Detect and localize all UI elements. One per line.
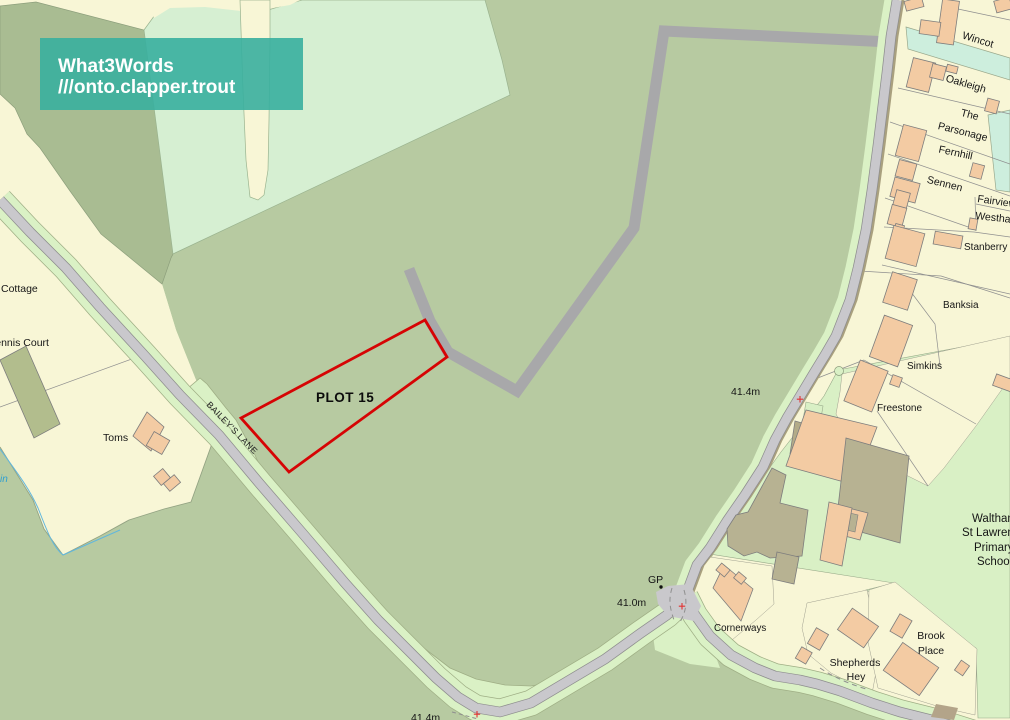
svg-text:in: in xyxy=(0,474,8,485)
svg-text:Brook: Brook xyxy=(917,630,945,642)
svg-text:Toms: Toms xyxy=(103,432,128,444)
svg-text:What3Words: What3Words xyxy=(58,56,174,77)
svg-text:St Lawrence: St Lawrence xyxy=(962,527,1010,539)
svg-text:Freestone: Freestone xyxy=(877,403,922,414)
svg-text:Stanberry: Stanberry xyxy=(964,242,1007,253)
svg-text:Hey: Hey xyxy=(847,671,866,683)
svg-text:Cornerways: Cornerways xyxy=(714,623,766,634)
svg-text:Simkins: Simkins xyxy=(907,361,942,372)
svg-text:///onto.clapper.trout: ///onto.clapper.trout xyxy=(58,77,236,98)
svg-text:41.4m: 41.4m xyxy=(411,712,440,720)
svg-text:School: School xyxy=(977,556,1010,568)
svg-text:PLOT 15: PLOT 15 xyxy=(316,390,374,405)
svg-text:Shepherds: Shepherds xyxy=(830,657,881,669)
svg-text:Tennis Court: Tennis Court xyxy=(0,337,49,349)
svg-text:Cottage: Cottage xyxy=(1,283,38,295)
svg-text:Place: Place xyxy=(918,645,944,657)
svg-text:41.0m: 41.0m xyxy=(617,597,646,609)
svg-text:Waltham: Waltham xyxy=(972,513,1010,525)
svg-text:Primary: Primary xyxy=(974,542,1010,554)
svg-text:41.4m: 41.4m xyxy=(731,386,760,398)
svg-text:GP: GP xyxy=(648,574,663,586)
svg-text:Banksia: Banksia xyxy=(943,300,979,311)
